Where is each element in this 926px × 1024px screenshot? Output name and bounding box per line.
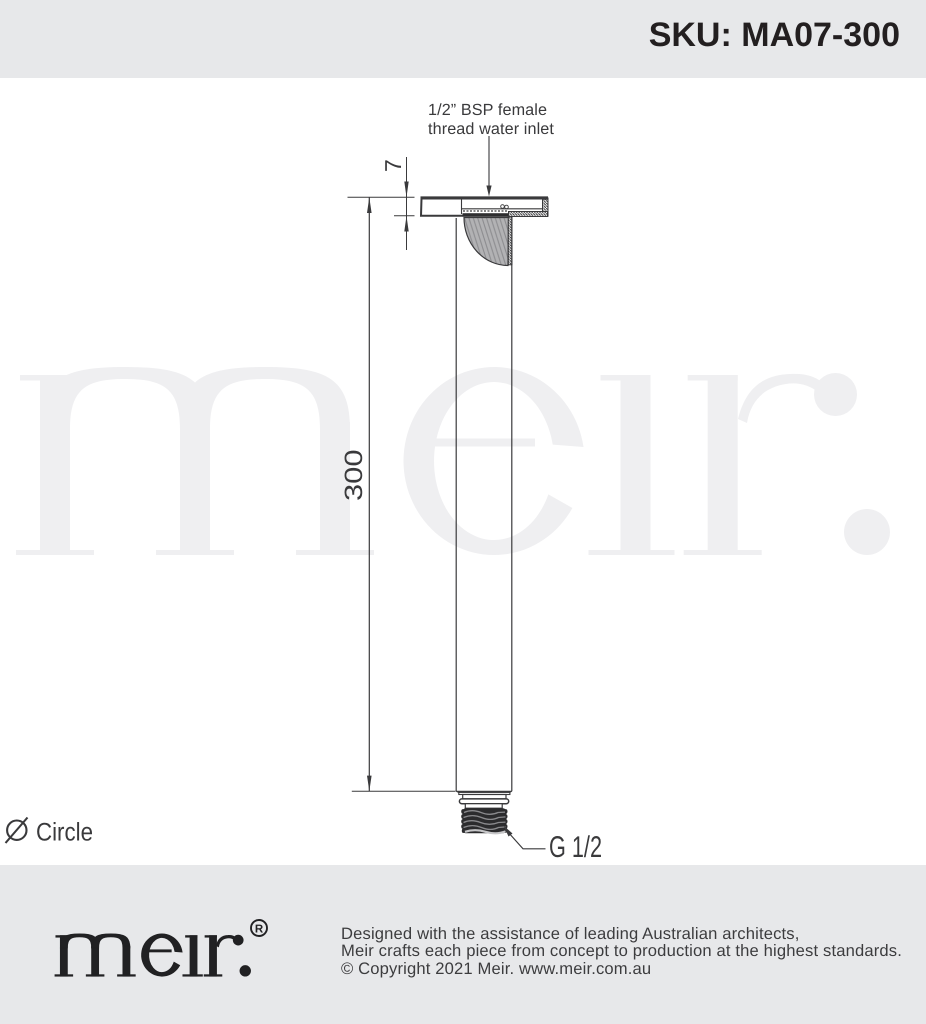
svg-text:R: R bbox=[255, 923, 264, 935]
